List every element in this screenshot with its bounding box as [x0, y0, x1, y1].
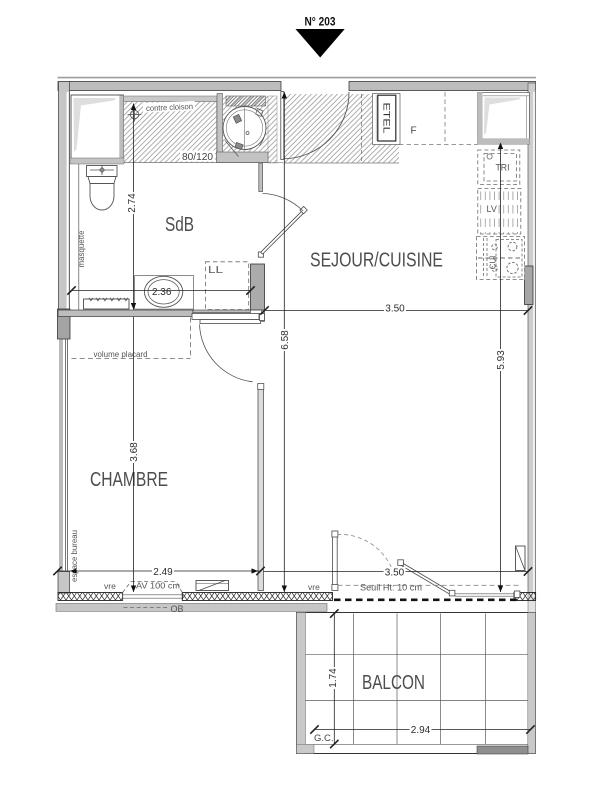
svg-text:CUI: CUI [489, 256, 498, 270]
svg-text:SdB: SdB [165, 213, 194, 236]
svg-text:vre: vre [308, 582, 320, 592]
svg-text:80/120: 80/120 [182, 152, 213, 163]
svg-text:LL: LL [208, 265, 224, 276]
svg-text:TRI: TRI [496, 163, 510, 173]
svg-text:volume placard: volume placard [94, 350, 148, 359]
svg-text:2.94: 2.94 [411, 725, 431, 736]
svg-text:N° 203: N° 203 [305, 17, 336, 29]
svg-text:1.74: 1.74 [328, 668, 339, 688]
svg-text:F: F [411, 126, 417, 137]
svg-text:2.36: 2.36 [152, 287, 172, 298]
svg-text:3.50: 3.50 [385, 304, 405, 315]
svg-text:masquette: masquette [76, 230, 86, 267]
svg-text:SEJOUR/CUISINE: SEJOUR/CUISINE [310, 249, 443, 272]
svg-text:CHAMBRE: CHAMBRE [90, 468, 168, 491]
svg-text:3.68: 3.68 [129, 442, 140, 462]
svg-text:espace bureau: espace bureau [70, 530, 79, 582]
svg-text:Seuil Ht: 10 cm: Seuil Ht: 10 cm [360, 583, 422, 593]
svg-text:LV: LV [487, 204, 497, 214]
svg-text:AV 100 cm: AV 100 cm [136, 581, 180, 591]
svg-text:2.49: 2.49 [153, 567, 173, 578]
svg-text:ETEL: ETEL [382, 103, 392, 134]
svg-text:6.58: 6.58 [280, 330, 291, 350]
svg-text:OB: OB [171, 604, 184, 614]
svg-text:G.C.: G.C. [314, 733, 334, 744]
svg-text:3.50: 3.50 [385, 568, 405, 579]
svg-text:2.74: 2.74 [127, 193, 138, 213]
svg-text:BALCON: BALCON [362, 671, 425, 694]
svg-text:5.93: 5.93 [496, 350, 507, 370]
svg-text:vre: vre [104, 581, 116, 591]
